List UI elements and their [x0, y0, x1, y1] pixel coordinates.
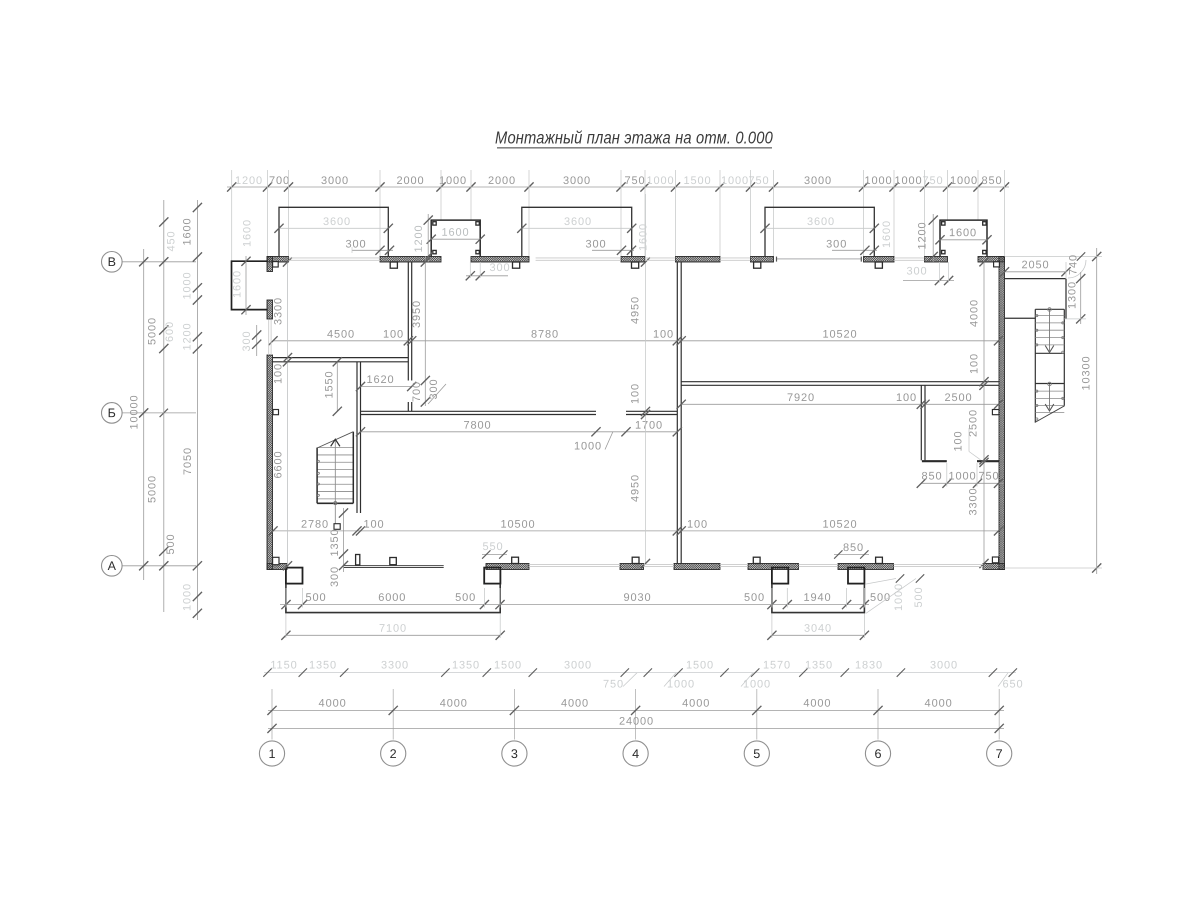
svg-text:1350: 1350 — [452, 659, 480, 671]
svg-text:Монтажный план этажа на отм. 0: Монтажный план этажа на отм. 0.000 — [495, 128, 773, 147]
svg-text:750: 750 — [978, 470, 999, 482]
svg-text:3600: 3600 — [564, 216, 592, 228]
svg-text:1000: 1000 — [894, 175, 922, 187]
svg-text:100: 100 — [969, 353, 981, 374]
svg-text:450: 450 — [165, 230, 177, 251]
svg-text:750: 750 — [624, 175, 645, 187]
svg-text:2050: 2050 — [1021, 259, 1049, 271]
svg-text:4500: 4500 — [327, 329, 355, 341]
svg-text:1600: 1600 — [638, 223, 650, 251]
svg-text:300: 300 — [906, 265, 927, 277]
svg-text:4000: 4000 — [803, 698, 831, 710]
svg-text:600: 600 — [164, 321, 176, 342]
svg-text:24000: 24000 — [619, 716, 654, 728]
svg-text:5000: 5000 — [147, 475, 159, 503]
svg-text:8780: 8780 — [531, 329, 559, 341]
svg-text:1620: 1620 — [366, 374, 394, 386]
svg-text:1600: 1600 — [881, 220, 893, 248]
svg-text:7920: 7920 — [787, 392, 815, 404]
svg-text:1000: 1000 — [439, 175, 467, 187]
svg-text:10520: 10520 — [822, 329, 857, 341]
svg-text:1940: 1940 — [803, 592, 831, 604]
svg-text:500: 500 — [744, 592, 765, 604]
svg-text:1550: 1550 — [324, 370, 336, 398]
svg-text:9030: 9030 — [623, 592, 651, 604]
svg-text:1600: 1600 — [242, 219, 254, 247]
svg-text:1000: 1000 — [743, 678, 771, 690]
svg-text:1700: 1700 — [635, 420, 663, 432]
svg-text:750: 750 — [922, 175, 943, 187]
svg-text:1000: 1000 — [950, 175, 978, 187]
svg-text:7800: 7800 — [463, 420, 491, 432]
svg-text:700: 700 — [269, 175, 290, 187]
svg-text:3950: 3950 — [411, 300, 423, 328]
svg-text:100: 100 — [896, 392, 917, 404]
svg-text:А: А — [108, 559, 117, 573]
svg-text:1000: 1000 — [574, 440, 602, 452]
svg-text:100: 100 — [273, 363, 285, 384]
svg-text:300: 300 — [345, 238, 366, 250]
svg-text:500: 500 — [455, 592, 476, 604]
svg-text:100: 100 — [953, 430, 965, 451]
svg-text:1000: 1000 — [721, 175, 749, 187]
svg-text:100: 100 — [653, 329, 674, 341]
svg-text:2000: 2000 — [396, 175, 424, 187]
svg-text:1500: 1500 — [683, 175, 711, 187]
svg-text:10300: 10300 — [1081, 355, 1093, 390]
svg-text:7100: 7100 — [379, 623, 407, 635]
svg-text:10000: 10000 — [129, 394, 141, 429]
svg-text:2: 2 — [390, 747, 397, 761]
svg-text:1350: 1350 — [805, 659, 833, 671]
svg-text:6000: 6000 — [378, 592, 406, 604]
svg-text:1: 1 — [268, 747, 275, 761]
svg-text:4000: 4000 — [440, 698, 468, 710]
svg-text:500: 500 — [305, 592, 326, 604]
svg-text:700: 700 — [411, 381, 423, 402]
svg-text:2780: 2780 — [301, 519, 329, 531]
svg-text:1350: 1350 — [309, 659, 337, 671]
svg-text:3000: 3000 — [564, 659, 592, 671]
svg-text:3000: 3000 — [930, 659, 958, 671]
svg-text:1000: 1000 — [667, 678, 695, 690]
svg-text:500: 500 — [913, 586, 925, 607]
svg-text:1200: 1200 — [917, 221, 929, 249]
svg-text:4000: 4000 — [319, 698, 347, 710]
svg-text:1350: 1350 — [329, 528, 341, 556]
svg-text:650: 650 — [1002, 678, 1023, 690]
svg-text:3300: 3300 — [968, 487, 980, 515]
svg-text:4000: 4000 — [682, 698, 710, 710]
svg-text:750: 750 — [748, 175, 769, 187]
svg-text:4000: 4000 — [969, 299, 981, 327]
svg-text:3: 3 — [511, 747, 518, 761]
svg-text:300: 300 — [329, 566, 341, 587]
svg-text:1000: 1000 — [864, 175, 892, 187]
svg-text:4: 4 — [632, 747, 639, 761]
svg-text:1600: 1600 — [441, 227, 469, 239]
svg-text:740: 740 — [1068, 254, 1080, 275]
svg-text:1300: 1300 — [1067, 281, 1079, 309]
svg-text:2500: 2500 — [944, 392, 972, 404]
svg-text:3600: 3600 — [323, 216, 351, 228]
svg-text:1830: 1830 — [855, 659, 883, 671]
svg-text:6600: 6600 — [273, 450, 285, 478]
svg-text:1150: 1150 — [270, 659, 297, 671]
svg-text:500: 500 — [165, 533, 177, 554]
svg-text:4000: 4000 — [925, 698, 953, 710]
svg-text:4000: 4000 — [561, 698, 589, 710]
svg-text:1000: 1000 — [646, 175, 674, 187]
svg-text:1200: 1200 — [413, 224, 425, 252]
svg-text:1500: 1500 — [494, 659, 522, 671]
svg-text:6: 6 — [874, 747, 881, 761]
svg-text:1500: 1500 — [686, 659, 714, 671]
svg-text:1600: 1600 — [232, 270, 244, 298]
svg-text:4950: 4950 — [630, 474, 642, 502]
svg-text:850: 850 — [843, 542, 864, 554]
svg-text:1570: 1570 — [763, 659, 791, 671]
svg-text:3300: 3300 — [273, 297, 285, 325]
svg-text:100: 100 — [363, 519, 384, 531]
svg-text:1200: 1200 — [182, 322, 194, 350]
svg-text:2000: 2000 — [488, 175, 516, 187]
svg-text:3600: 3600 — [807, 216, 835, 228]
svg-text:7050: 7050 — [182, 447, 194, 475]
svg-text:3300: 3300 — [381, 659, 409, 671]
svg-text:1000: 1000 — [182, 583, 194, 611]
svg-text:300: 300 — [585, 238, 606, 250]
svg-text:1000: 1000 — [948, 470, 976, 482]
svg-text:1600: 1600 — [182, 217, 194, 245]
svg-text:850: 850 — [921, 470, 942, 482]
svg-text:Б: Б — [108, 406, 116, 420]
svg-text:5000: 5000 — [147, 317, 159, 345]
svg-text:100: 100 — [630, 383, 642, 404]
svg-text:1600: 1600 — [949, 227, 977, 239]
svg-text:300: 300 — [241, 330, 253, 351]
svg-text:10520: 10520 — [822, 519, 857, 531]
svg-text:4950: 4950 — [630, 296, 642, 324]
svg-text:100: 100 — [687, 519, 708, 531]
svg-text:300: 300 — [428, 378, 440, 399]
svg-text:1000: 1000 — [182, 271, 194, 299]
svg-text:7: 7 — [996, 747, 1003, 761]
svg-text:550: 550 — [482, 541, 503, 553]
svg-text:850: 850 — [981, 175, 1002, 187]
svg-text:3000: 3000 — [563, 175, 591, 187]
svg-text:300: 300 — [489, 262, 510, 274]
svg-text:300: 300 — [826, 238, 847, 250]
svg-text:100: 100 — [383, 329, 404, 341]
svg-text:В: В — [108, 255, 116, 269]
svg-text:750: 750 — [603, 678, 624, 690]
svg-text:3040: 3040 — [804, 623, 832, 635]
svg-text:5: 5 — [753, 747, 760, 761]
svg-text:3000: 3000 — [321, 175, 349, 187]
svg-text:10500: 10500 — [500, 519, 535, 531]
svg-text:3000: 3000 — [804, 175, 832, 187]
svg-text:1200: 1200 — [235, 175, 263, 187]
